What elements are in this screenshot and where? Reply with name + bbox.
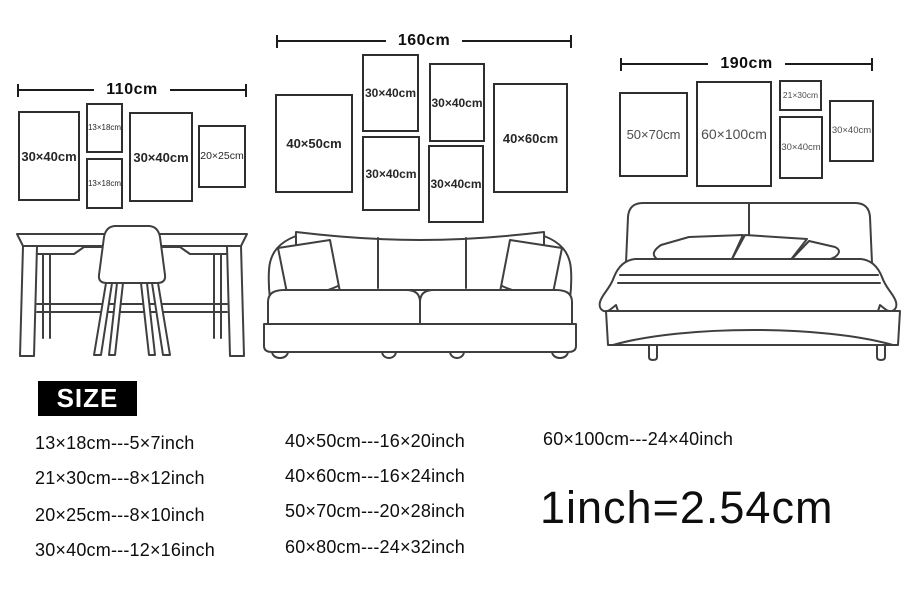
frame-size-label: 30×40cm [832, 126, 871, 136]
size-chart-infographic: 110cm 160cm 190cm 30×40cm 13×18cm 13×18c… [0, 0, 920, 600]
desk-and-chair-illustration [12, 222, 252, 362]
frame-size-label: 30×40cm [431, 97, 482, 109]
measure-line [19, 89, 94, 91]
size-conversion-row: 30×40cm---12×16inch [35, 540, 215, 561]
sofa-icon [254, 226, 586, 362]
desk-and-chair-icon [12, 222, 252, 362]
size-conversion-row: 21×30cm---8×12inch [35, 468, 205, 489]
size-conversion-row: 13×18cm---5×7inch [35, 433, 195, 454]
frame-size-label: 30×40cm [365, 87, 416, 99]
right-tick [245, 84, 247, 97]
measure-line [170, 89, 245, 91]
width-indicator-bed: 190cm [620, 56, 873, 72]
frame-30x40: 30×40cm [362, 54, 419, 132]
size-conversion-row: 50×70cm---20×28inch [285, 501, 465, 522]
frame-20x25: 20×25cm [198, 125, 246, 188]
frame-size-label: 30×40cm [430, 178, 481, 190]
sofa-illustration [254, 226, 586, 362]
measure-line [462, 40, 570, 42]
width-indicator-sofa: 160cm [276, 33, 572, 49]
frame-30x40: 30×40cm [362, 136, 420, 211]
frame-40x50: 40×50cm [275, 94, 353, 193]
frame-size-label: 30×40cm [133, 151, 188, 164]
frame-30x40: 30×40cm [428, 145, 484, 223]
frame-size-label: 40×60cm [503, 132, 558, 145]
size-conversion-row: 60×100cm---24×40inch [543, 429, 733, 450]
frame-size-label: 13×18cm [88, 180, 121, 188]
frame-30x40: 30×40cm [779, 116, 823, 179]
size-conversion-row: 40×50cm---16×20inch [285, 431, 465, 452]
measure-line [622, 63, 708, 65]
frame-size-label: 21×30cm [783, 91, 818, 100]
frame-size-label: 13×18cm [88, 124, 121, 132]
frame-40x60: 40×60cm [493, 83, 568, 193]
frame-30x40: 30×40cm [129, 112, 193, 202]
inch-cm-conversion: 1inch=2.54cm [540, 482, 833, 534]
frame-size-label: 50×70cm [627, 128, 681, 141]
size-conversion-row: 40×60cm---16×24inch [285, 466, 465, 487]
frame-60x100: 60×100cm [696, 81, 772, 187]
width-label: 190cm [708, 55, 784, 73]
frame-size-label: 20×25cm [200, 151, 244, 162]
frame-30x40: 30×40cm [18, 111, 80, 201]
width-label: 160cm [386, 32, 462, 50]
size-conversion-row: 20×25cm---8×10inch [35, 505, 205, 526]
frame-50x70: 50×70cm [619, 92, 688, 177]
frame-size-label: 30×40cm [781, 143, 820, 153]
measure-line [785, 63, 871, 65]
frame-size-label: 60×100cm [701, 127, 767, 141]
right-tick [570, 35, 572, 48]
frame-13x18: 13×18cm [86, 158, 123, 209]
frame-size-label: 30×40cm [21, 150, 76, 163]
width-indicator-desk: 110cm [17, 82, 247, 98]
bed-illustration [593, 197, 913, 362]
frame-30x40: 30×40cm [429, 63, 485, 142]
frame-21x30: 21×30cm [779, 80, 822, 111]
frame-size-label: 30×40cm [365, 168, 416, 180]
frame-30x40: 30×40cm [829, 100, 874, 162]
right-tick [871, 58, 873, 71]
size-heading: SIZE [38, 381, 137, 416]
measure-line [278, 40, 386, 42]
width-label: 110cm [94, 81, 169, 99]
size-conversion-row: 60×80cm---24×32inch [285, 537, 465, 558]
frame-size-label: 40×50cm [286, 137, 341, 150]
frame-13x18: 13×18cm [86, 103, 123, 153]
bed-icon [593, 197, 913, 362]
